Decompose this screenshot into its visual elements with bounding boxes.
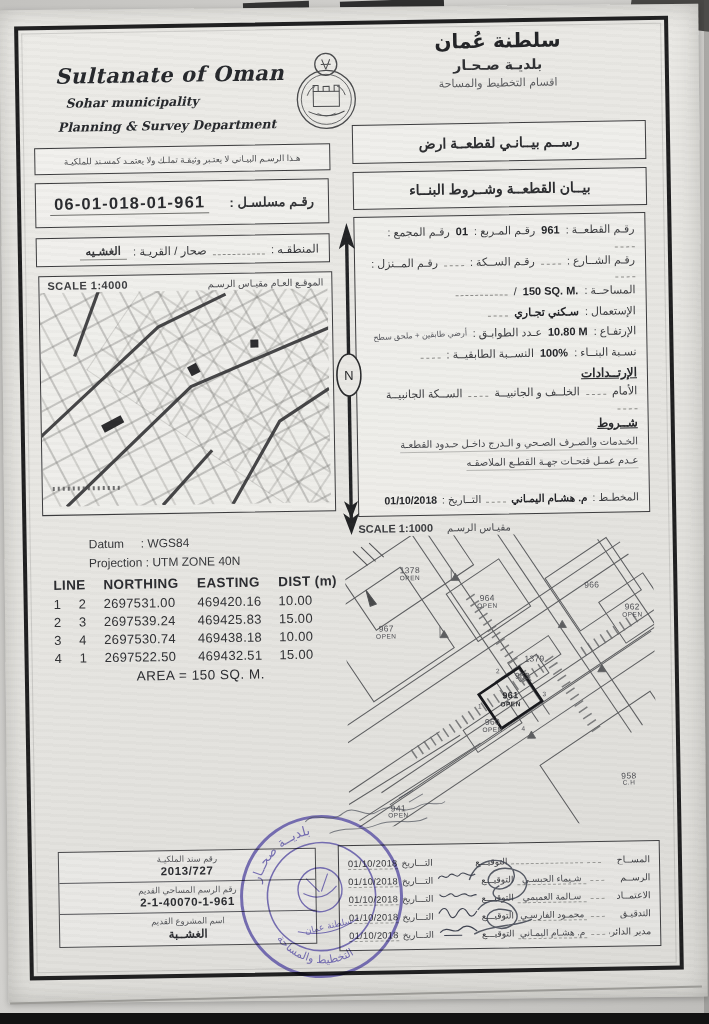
floors-value: أرضي طابقين + ملحق سطح xyxy=(373,327,467,344)
square-value: 01 xyxy=(456,223,469,240)
datum-line: Datum : WGS84 xyxy=(89,533,241,554)
coordinates-table: LINE NORTHING EASTING DIST (m) 122697531… xyxy=(49,571,351,685)
statement-title: بيــان القطعــة وشــروط البنــاء xyxy=(409,179,591,198)
area-note: AREA = 150 SQ. M. xyxy=(51,665,351,685)
back-side-label: الخلــف و الجانبيــة xyxy=(494,383,580,401)
disclaimer-box: هـذا الرسـم البيـاني لا يعتـبر وثيقـة تم… xyxy=(34,143,330,175)
plot-number-row: رقـم القطعــة : 961 رقـم المـربع : 01 رق… xyxy=(362,220,634,251)
planner-date-label: التــاريخ : xyxy=(442,492,482,508)
photo-bottom-bar xyxy=(0,1013,709,1024)
plot-no-value: 961 xyxy=(541,222,560,239)
scanned-survey-document: { "header": { "title_en": "Sultanate of … xyxy=(0,0,709,1024)
plot-label: 966 xyxy=(584,581,599,590)
coords-rows: 122697531.00469420.1610.00232697539.2446… xyxy=(50,590,351,667)
north-arrow-icon: N xyxy=(333,223,364,535)
planner-name: م. هشـام اليمـاني xyxy=(511,490,588,507)
statement-title-box: بيــان القطعــة وشــروط البنــاء xyxy=(353,167,648,210)
col-dist: DIST (m) xyxy=(274,571,349,591)
use-label: الإستعمال : xyxy=(585,302,636,319)
col-line: LINE xyxy=(49,575,99,595)
municipality-emblem-icon xyxy=(289,51,364,134)
height-row: الإرتفـاع : 10.80 M عـدد الطوابـق : أرضي… xyxy=(364,322,636,343)
region-label: المنطقـه : xyxy=(271,241,319,256)
municipality-en: Sohar municipality xyxy=(65,92,284,111)
planner-label: المخطـط : xyxy=(592,489,639,506)
document-frame: Sultanate of Oman Sohar municipality Pla… xyxy=(14,16,684,981)
height-value: 10.80 M xyxy=(548,323,588,340)
subject-plot-label: 961OPEN xyxy=(500,691,521,708)
serial-box: رقـم مسلسـل : 06-01-018-01-961 xyxy=(35,178,330,228)
build-ratio-label: نسـبة البنــاء : xyxy=(574,343,637,361)
plot-label: 963 xyxy=(515,672,530,681)
serial-value: 06-01-018-01-961 xyxy=(50,192,210,216)
setbacks-row: الأمام الخلــف و الجانبيــة الســكة الجا… xyxy=(365,382,637,413)
country-title-ar: سلطنة عُمان xyxy=(354,26,640,55)
serial-label: رقـم مسلسـل : xyxy=(229,194,314,210)
plot-label: 967OPEN xyxy=(376,624,397,640)
municipality-ar: بلديـة صـحـار xyxy=(355,54,641,75)
area-label: المساحــة : xyxy=(584,281,635,298)
vertex-label: 1 xyxy=(478,702,482,709)
header-english: Sultanate of Oman Sohar municipality Pla… xyxy=(55,60,285,135)
floor-ratio-label: النســبة الطابقيــة : xyxy=(446,344,534,362)
country-title-en: Sultanate of Oman xyxy=(55,60,285,89)
overview-map-box: SCALE 1:4000 الموقـع العـام مقيـاس الرسـ… xyxy=(38,271,336,516)
plot-label: 960OPEN xyxy=(482,718,503,734)
plot-label: 958C.H xyxy=(621,771,636,787)
plot-label: 1379 xyxy=(524,654,544,663)
house-label: رقـم المــنزل : xyxy=(371,254,438,272)
north-letter: N xyxy=(344,368,354,383)
area-row: المساحــة : 150 SQ. M. / xyxy=(363,281,635,302)
floors-label: عـدد الطوابـق : xyxy=(473,324,543,342)
vertex-label: 2 xyxy=(496,667,500,674)
height-label: الإرتفـاع : xyxy=(594,322,637,339)
department-en: Planning & Survey Department xyxy=(58,116,285,135)
street-row: رقـم الشــارع : رقـم الســكة : رقـم المـ… xyxy=(363,251,635,282)
lane-label: رقـم الســكة : xyxy=(470,252,535,270)
plot-details-box: رقـم القطعــة : 961 رقـم المـربع : 01 رق… xyxy=(353,212,650,517)
use-row: الإستعمال : سـكني تجـاري xyxy=(364,302,636,323)
village-value: الغشـيه xyxy=(79,243,127,260)
plot-label: 1378OPEN xyxy=(400,566,421,582)
side-lane-label: الســكة الجانبيــة xyxy=(386,385,463,403)
region-mid-label: صحار / القريـة : xyxy=(133,243,207,258)
plot-no-label: رقـم القطعــة : xyxy=(565,220,634,238)
region-box: المنطقـه : صحار / القريـة : الغشـيه xyxy=(36,233,330,267)
drawing-title: رســم بيــانـي لقطعــة ارض xyxy=(419,133,580,152)
front-label: الأمام xyxy=(612,382,638,399)
ratio-row: نسـبة البنــاء : 100% النســبة الطابقيــ… xyxy=(364,343,636,364)
col-northing: NORTHING xyxy=(99,574,193,595)
disclaimer-text: هـذا الرسـم البيـاني لا يعتـبر وثيقـة تم… xyxy=(64,152,301,166)
department-ar: اقسام التخطيط والمساحة xyxy=(355,74,641,92)
planner-row: المخطـط : م. هشـام اليمـاني التــاريخ : … xyxy=(367,489,639,509)
projection-line: Projection : UTM ZONE 40N xyxy=(89,551,241,572)
geodesy-block: Datum : WGS84 Projection : UTM ZONE 40N xyxy=(89,533,241,573)
vertex-label: 3 xyxy=(542,690,546,697)
handwritten-note xyxy=(299,789,450,837)
overview-map-caption: الموقـع العـام مقيـاس الرسـم xyxy=(207,276,323,289)
col-easting: EASTING xyxy=(193,572,275,592)
detail-map-scale: SCALE 1:1000 xyxy=(358,522,433,535)
detail-map-caption: مقيـاس الرسـم xyxy=(447,521,511,533)
detail-map-stage: 1378OPEN 964OPEN 966 962OPEN 967OPEN 137… xyxy=(345,532,658,827)
plot-label: 964OPEN xyxy=(477,593,498,609)
detail-map-drawing xyxy=(345,532,658,827)
vertex-label: 4 xyxy=(521,725,525,732)
drawing-title-box: رســم بيــانـي لقطعــة ارض xyxy=(352,120,647,164)
square-label: رقـم المـربع : xyxy=(474,222,536,240)
planner-date: 01/10/2018 xyxy=(384,493,437,510)
area-value: 150 SQ. M. xyxy=(523,282,579,299)
document-paper: Sultanate of Oman Sohar municipality Pla… xyxy=(0,4,708,1004)
header-arabic: سلطنة عُمان بلديـة صـحـار اقسام التخطيط … xyxy=(354,26,641,92)
stamp-center-text: سلطنة عمان xyxy=(304,916,353,937)
complex-label: رقـم المجمع : xyxy=(387,223,450,241)
overview-map-scale: SCALE 1:4000 xyxy=(47,279,128,292)
plot-label: 962OPEN xyxy=(622,603,643,619)
build-ratio-value: 100% xyxy=(540,344,568,361)
overview-map-drawing xyxy=(40,288,332,507)
coords-row: 412697522.50469432.5115.00 xyxy=(50,644,350,667)
street-label: رقـم الشــارع : xyxy=(567,251,635,269)
use-value: سـكني تجـاري xyxy=(514,303,579,321)
